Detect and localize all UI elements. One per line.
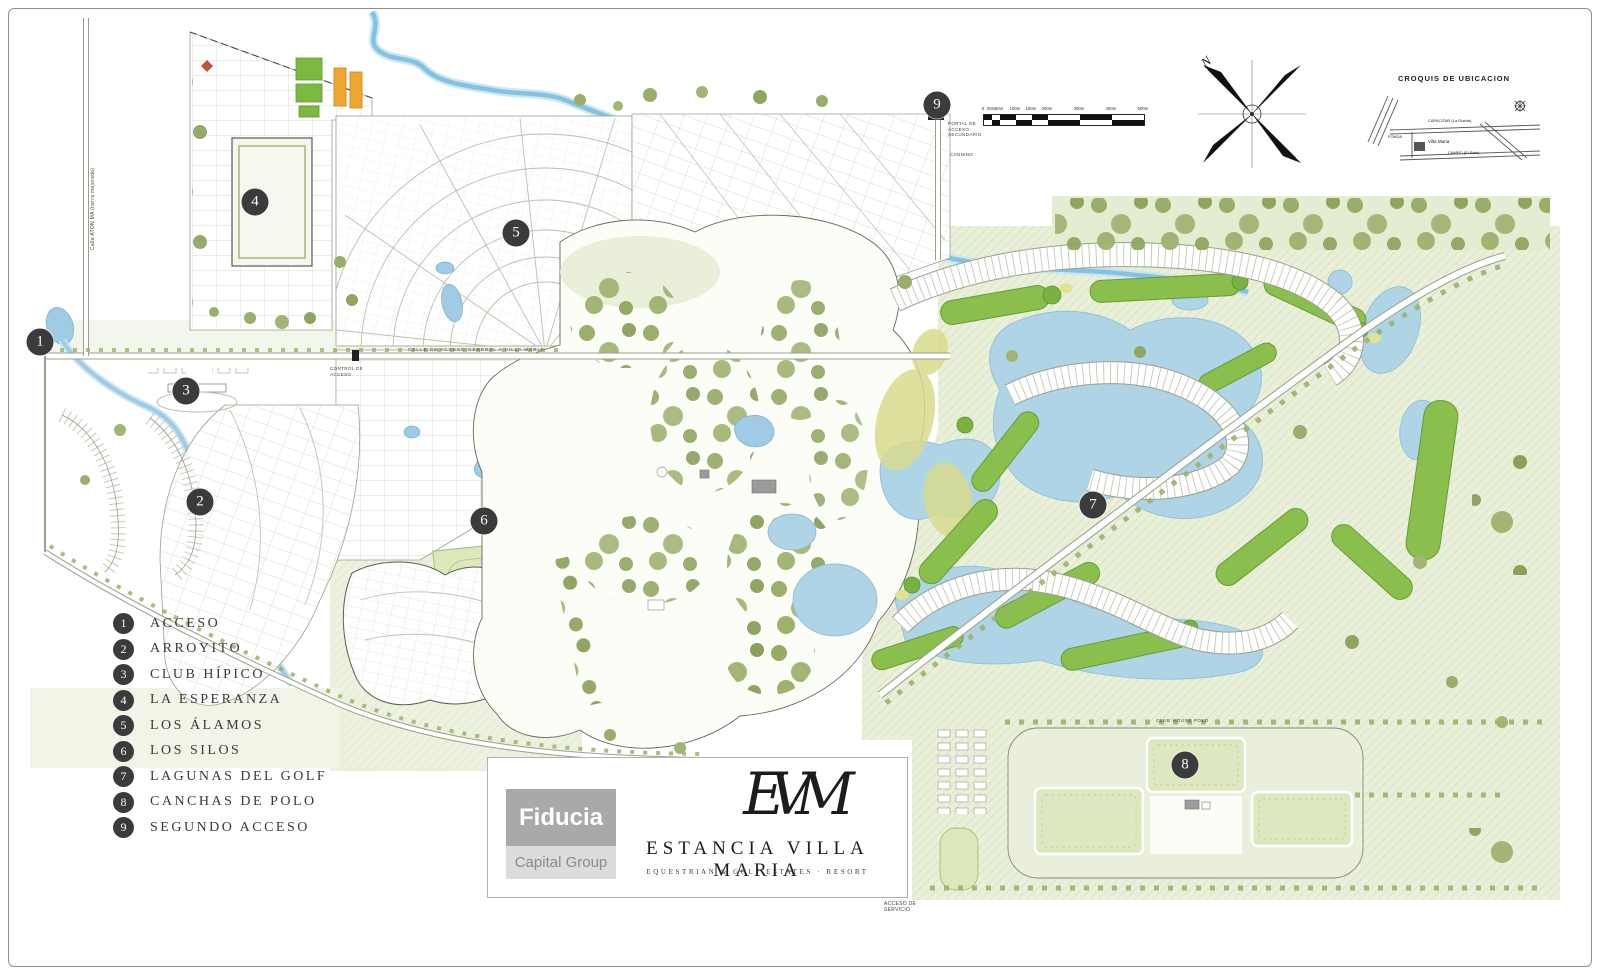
croquis-road-left-label: FONDA xyxy=(1388,134,1402,139)
legend-item-los-silos: 6LOS SILOS xyxy=(113,741,327,762)
evm-monogram: EVM xyxy=(676,760,906,828)
developer-division: Capital Group xyxy=(506,846,616,879)
map-marker-segundo-acceso: 9 xyxy=(924,92,951,119)
legend-number: 8 xyxy=(113,792,134,813)
marker-number: 3 xyxy=(182,383,190,400)
scale-tick: 100m xyxy=(1010,106,1021,111)
croquis-road-top-label: CAPACITAR (La Rueda) xyxy=(1428,118,1471,123)
marker-number: 8 xyxy=(1181,757,1189,774)
masterplan-page: 1 2 3 4 5 6 7 8 9 PORTAL DE ACCESO SECUN… xyxy=(0,0,1600,975)
club-house-polo-label: CLUB HOUSE POLO xyxy=(1156,718,1209,724)
legend-number: 5 xyxy=(113,715,134,736)
legend-number: 9 xyxy=(113,817,134,838)
calle-acceso-label: CALLE DE ACCESO GENERAL A VILLA MARIA xyxy=(408,347,544,353)
legend-label: ACCESO xyxy=(150,616,220,632)
legend-number: 6 xyxy=(113,741,134,762)
compass-star xyxy=(1196,58,1308,170)
croquis-ubicacion: CROQUIS DE UBICACION CAPACITAR (La Rueda… xyxy=(1360,74,1548,166)
scale-tick: 500m xyxy=(1138,106,1149,111)
scale-bar-strip xyxy=(983,114,1145,126)
legend-number: 1 xyxy=(113,613,134,634)
legend-number: 7 xyxy=(113,766,134,787)
legend-label: SEGUNDO ACCESO xyxy=(150,820,310,836)
project-subtitle: EQUESTRIAN & GOLF ESTATES · RESORT xyxy=(618,868,897,876)
legend-item-lagunas-del-golf: 7LAGUNAS DEL GOLF xyxy=(113,766,327,787)
legend-number: 3 xyxy=(113,664,134,685)
control-acceso-label: CONTROL DE ACCESO xyxy=(330,366,363,377)
map-marker-los-silos: 6 xyxy=(471,508,498,535)
scale-tick: 150m xyxy=(1026,106,1037,111)
map-marker-los-alamos: 5 xyxy=(503,220,530,247)
map-marker-la-esperanza: 4 xyxy=(242,189,269,216)
legend-label: LOS ÁLAMOS xyxy=(150,718,264,734)
marker-number: 6 xyxy=(480,513,488,530)
map-marker-acceso: 1 xyxy=(27,329,54,356)
legend-label: CLUB HÍPICO xyxy=(150,667,265,683)
croquis-site-label: Villa Maria xyxy=(1428,139,1449,144)
legend-item-acceso: 1ACCESO xyxy=(113,613,327,634)
legend-label: CANCHAS DE POLO xyxy=(150,794,317,810)
acceso-servicio-label: ACCESO DE SERVICIO xyxy=(884,901,916,914)
marker-number: 2 xyxy=(196,494,204,511)
compass-rose: N xyxy=(1196,58,1308,170)
legend-item-segundo-acceso: 9SEGUNDO ACCESO xyxy=(113,817,327,838)
legend-number: 4 xyxy=(113,690,134,711)
scale-tick: 50m xyxy=(995,106,1003,111)
map-marker-canchas-de-polo: 8 xyxy=(1172,752,1199,779)
title-block: Fiducia Capital Group EVM ESTANCIA VILLA… xyxy=(487,757,908,898)
scale-bar: 0 25m 50m 100m 150m 200m 300m 400m 500m xyxy=(983,106,1153,132)
developer-name: Fiducia xyxy=(506,789,616,846)
map-marker-arroyito: 2 xyxy=(187,489,214,516)
scale-tick: 200m xyxy=(1042,106,1053,111)
scale-tick: 300m xyxy=(1074,106,1085,111)
calle-izquierda-label: Calle ATON MA (tierra mejorada) xyxy=(90,168,96,250)
scale-tick: 400m xyxy=(1106,106,1117,111)
legend-label: LA ESPERANZA xyxy=(150,692,282,708)
developer-logo: Fiducia Capital Group xyxy=(506,789,616,879)
legend-label: LOS SILOS xyxy=(150,743,241,759)
marker-number: 7 xyxy=(1089,497,1097,514)
scale-tick: 0 xyxy=(982,106,984,111)
legend-number: 2 xyxy=(113,639,134,660)
marker-number: 5 xyxy=(512,225,520,242)
marker-number: 4 xyxy=(251,194,259,211)
legend: 1ACCESO 2ARROYITO 3CLUB HÍPICO 4LA ESPER… xyxy=(113,613,327,843)
map-marker-lagunas-del-golf: 7 xyxy=(1080,492,1107,519)
marker-number: 9 xyxy=(933,97,941,114)
marker-number: 1 xyxy=(36,334,44,351)
legend-item-la-esperanza: 4LA ESPERANZA xyxy=(113,690,327,711)
canning-label: CANNING xyxy=(950,152,973,158)
legend-item-canchas-de-polo: 8CANCHAS DE POLO xyxy=(113,792,327,813)
legend-label: ARROYITO xyxy=(150,641,242,657)
legend-label: LAGUNAS DEL GOLF xyxy=(150,769,327,785)
legend-item-los-alamos: 5LOS ÁLAMOS xyxy=(113,715,327,736)
map-marker-club-hipico: 3 xyxy=(173,378,200,405)
croquis-title: CROQUIS DE UBICACION xyxy=(1360,74,1548,83)
croquis-road-bottom-label: CAMPO (El Pato) xyxy=(1448,150,1479,155)
legend-item-arroyito: 2ARROYITO xyxy=(113,639,327,660)
legend-item-club-hipico: 3CLUB HÍPICO xyxy=(113,664,327,685)
